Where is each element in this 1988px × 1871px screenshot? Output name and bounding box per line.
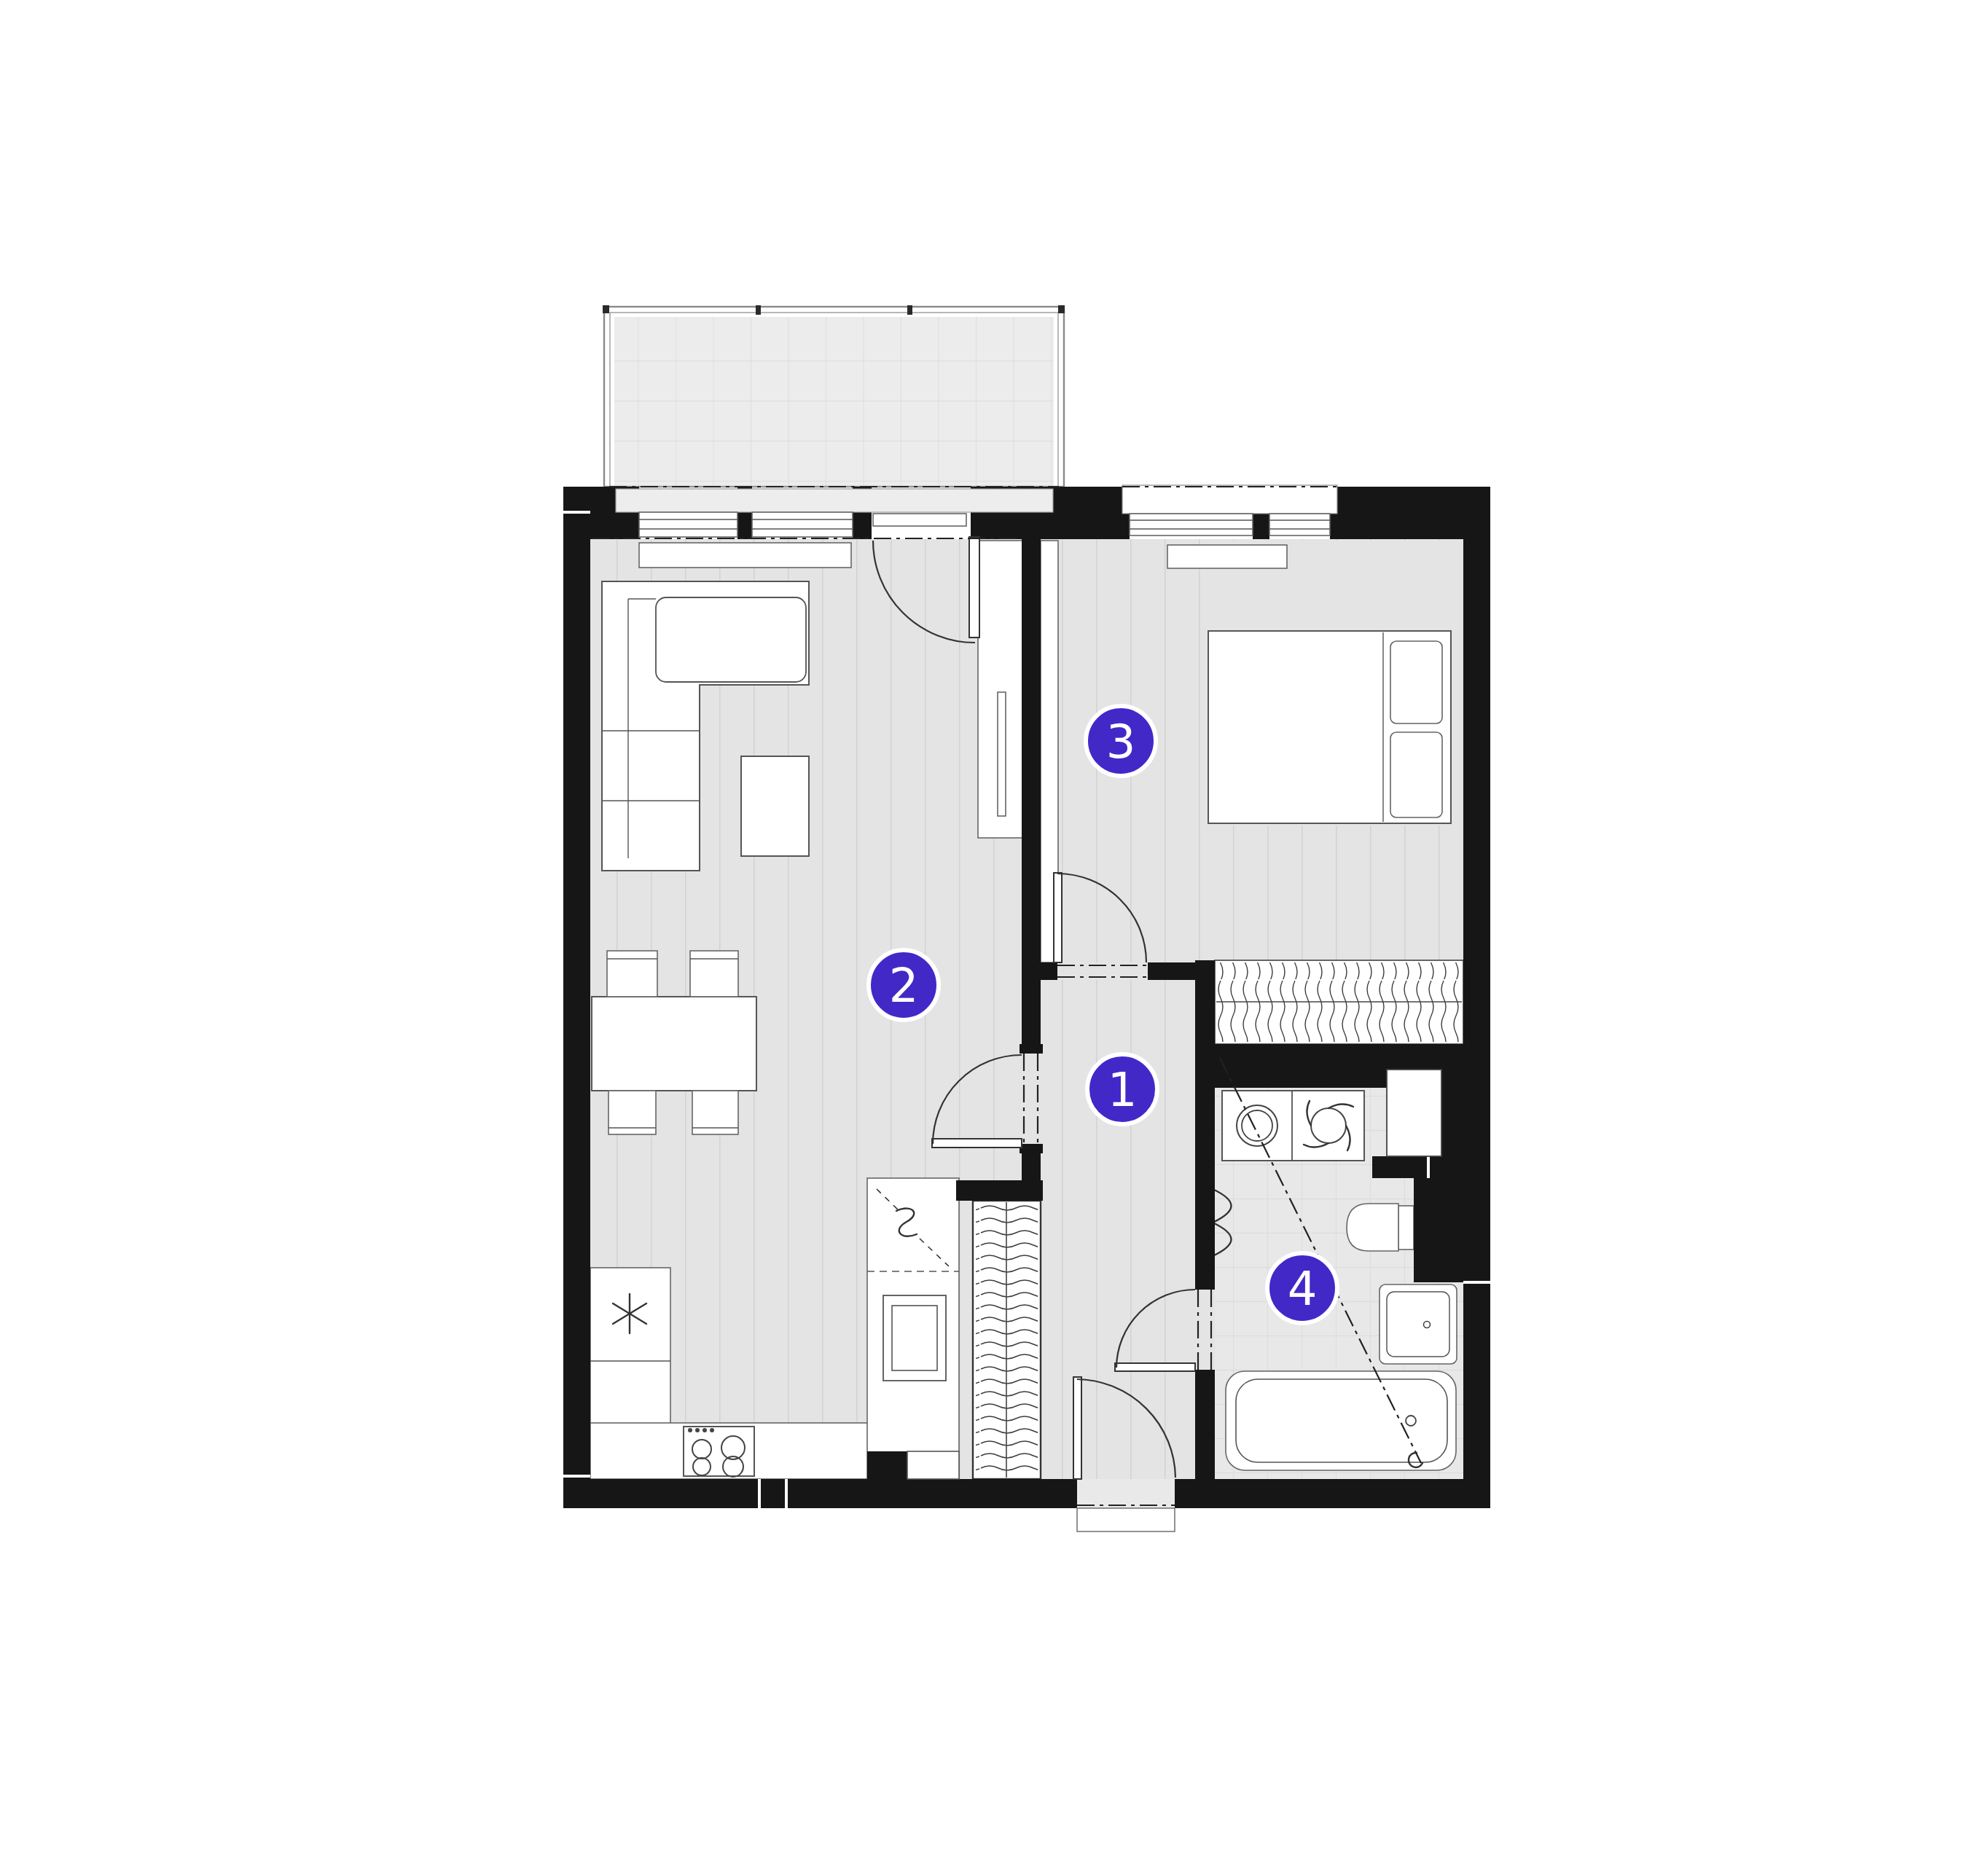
wall-right	[1463, 487, 1490, 1508]
chair	[607, 951, 657, 997]
room-number-4: 4	[1288, 1262, 1318, 1316]
stove-burners-icon	[684, 1427, 754, 1477]
page: 1 2 3 4	[0, 0, 1988, 1871]
floor-plan: 1 2 3 4	[0, 0, 1988, 1871]
room-label-3: 3	[1086, 706, 1156, 776]
hall-closet	[973, 1201, 1041, 1479]
bedroom-wardrobe	[1215, 960, 1463, 1044]
bedroom-window-sill	[1122, 485, 1337, 514]
living-cabinet	[978, 541, 1025, 838]
kitchen-sink	[883, 1295, 946, 1381]
pillow	[1390, 732, 1442, 817]
toilet	[1347, 1204, 1414, 1251]
kitchen-counter-bottom	[590, 1423, 872, 1479]
balcony-sill	[616, 489, 1053, 512]
window	[1130, 514, 1253, 536]
room-number-2: 2	[889, 959, 919, 1013]
bathtub	[1226, 1371, 1456, 1470]
room-label-4: 4	[1267, 1253, 1337, 1323]
bathroom-counter	[1222, 1091, 1364, 1161]
coffee-table	[741, 756, 809, 856]
chair	[690, 951, 738, 997]
bathroom-shaft-niche	[1387, 1070, 1441, 1156]
radiator	[1167, 545, 1287, 568]
bed	[1208, 631, 1451, 823]
window	[1269, 514, 1330, 536]
chair	[608, 1091, 656, 1134]
wall-left	[563, 487, 590, 1508]
balcony	[603, 305, 1065, 487]
room-label-2: 2	[869, 950, 939, 1020]
chair	[692, 1091, 738, 1134]
room-number-3: 3	[1106, 715, 1136, 769]
kitchen-counter-sink	[867, 1178, 959, 1479]
wall-bottom	[563, 1479, 1077, 1508]
room-label-1: 1	[1087, 1054, 1157, 1124]
pillow	[1390, 641, 1442, 723]
balcony-door-frame	[873, 514, 966, 526]
window	[639, 512, 737, 537]
radiator	[639, 543, 851, 568]
entry-threshold	[1077, 1508, 1175, 1531]
window	[752, 512, 853, 537]
room-number-1: 1	[1108, 1063, 1138, 1117]
washbasin	[1380, 1284, 1457, 1364]
